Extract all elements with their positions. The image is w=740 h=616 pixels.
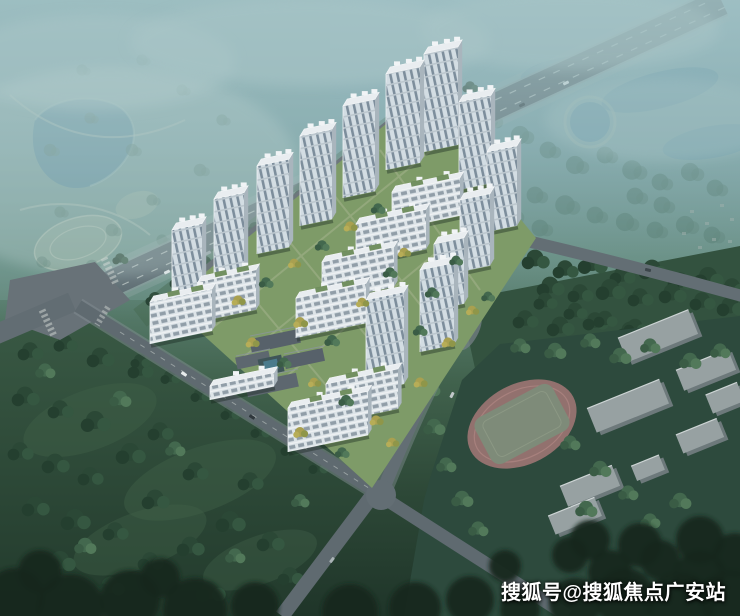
dark-tree-mass [552, 537, 588, 573]
dark-tree-mass [140, 558, 180, 598]
tower [386, 57, 424, 172]
tower [343, 89, 379, 200]
tower [300, 119, 336, 228]
dark-tree-mass [618, 523, 662, 567]
dark-tree-mass [676, 516, 724, 564]
watermark-text: 搜狐号@搜狐焦点广安站 [501, 576, 726, 605]
scene-svg [0, 0, 740, 616]
tower [257, 149, 293, 256]
dark-tree-mass [18, 550, 62, 594]
tower [420, 253, 458, 354]
aerial-render: 搜狐号@搜狐焦点广安站 [0, 0, 740, 616]
tower [424, 37, 462, 154]
